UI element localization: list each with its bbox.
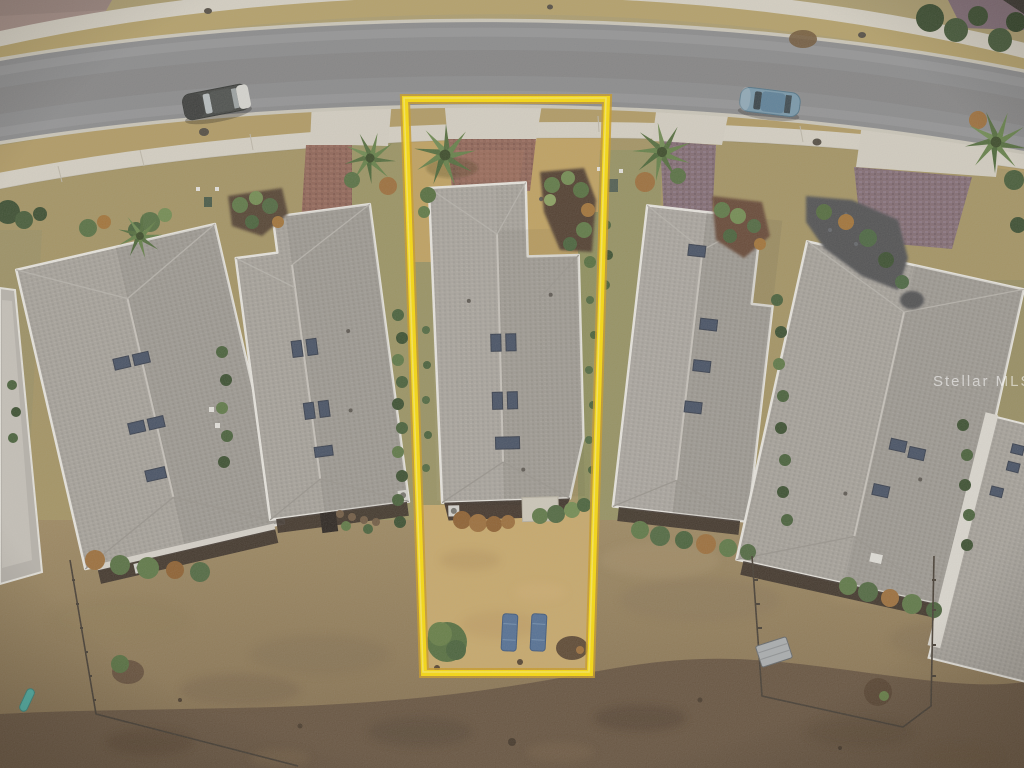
mls-watermark: Stellar MLS xyxy=(933,373,1024,390)
aerial-photo: Stellar MLS xyxy=(0,0,1024,768)
vignette xyxy=(0,0,1024,768)
